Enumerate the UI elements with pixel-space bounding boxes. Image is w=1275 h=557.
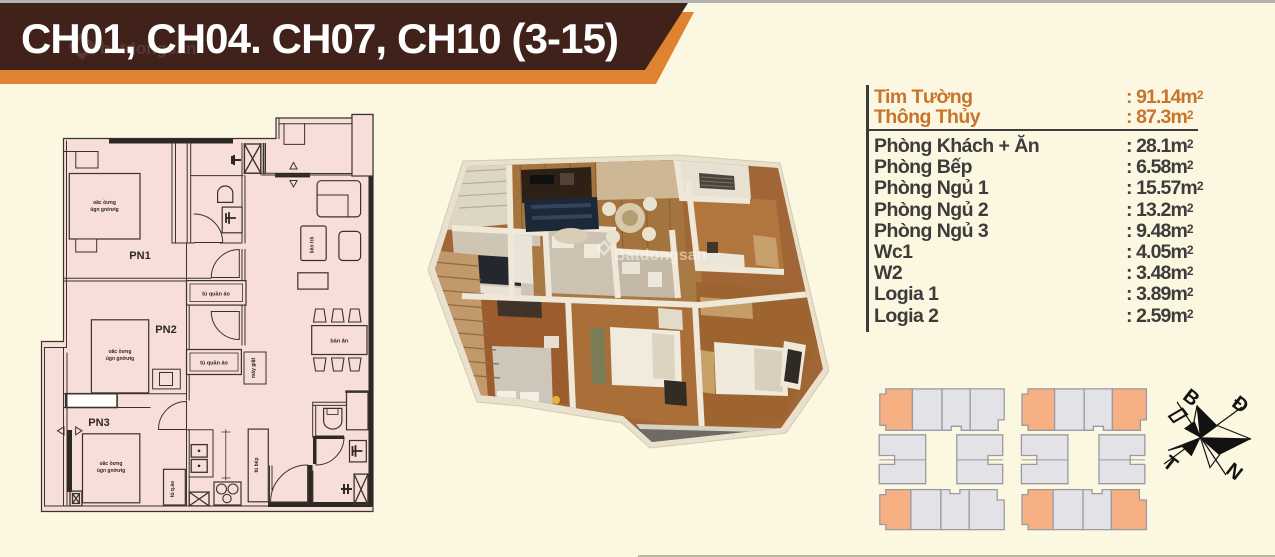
- svg-text:PN1: PN1: [129, 250, 150, 262]
- svg-text:máy giặt: máy giặt: [251, 358, 257, 379]
- svg-text:bàn trà: bàn trà: [310, 236, 316, 253]
- svg-text:ủgn gnờưig: ủgn gnờưig: [106, 356, 134, 362]
- svg-text:tủ q.áo: tủ q.áo: [170, 481, 176, 497]
- svg-text:batdongsan: batdongsan: [100, 39, 196, 58]
- svg-text:ủgn gnờưig: ủgn gnờưig: [97, 468, 125, 474]
- svg-text:oãc ồưng: oãc ồưng: [109, 349, 132, 355]
- svg-text:oãc ồưng: oãc ồưng: [93, 200, 116, 206]
- svg-text:oãc ồưng: oãc ồưng: [100, 461, 123, 467]
- svg-text:bàn ăn: bàn ăn: [330, 339, 348, 345]
- svg-text:Batdongsan: Batdongsan: [614, 247, 706, 264]
- svg-text:tủ bếp: tủ bếp: [253, 458, 260, 473]
- svg-text:B: B: [1179, 385, 1204, 411]
- svg-text:tủ quần áo: tủ quần áo: [202, 292, 230, 298]
- svg-text:PN3: PN3: [88, 417, 109, 429]
- svg-text:T: T: [1158, 452, 1181, 477]
- svg-text:ủgn gnờưig: ủgn gnờưig: [90, 207, 118, 213]
- svg-text:N: N: [1222, 459, 1247, 485]
- svg-text:PN2: PN2: [155, 324, 176, 336]
- svg-text:tủ quần áo: tủ quần áo: [200, 361, 228, 367]
